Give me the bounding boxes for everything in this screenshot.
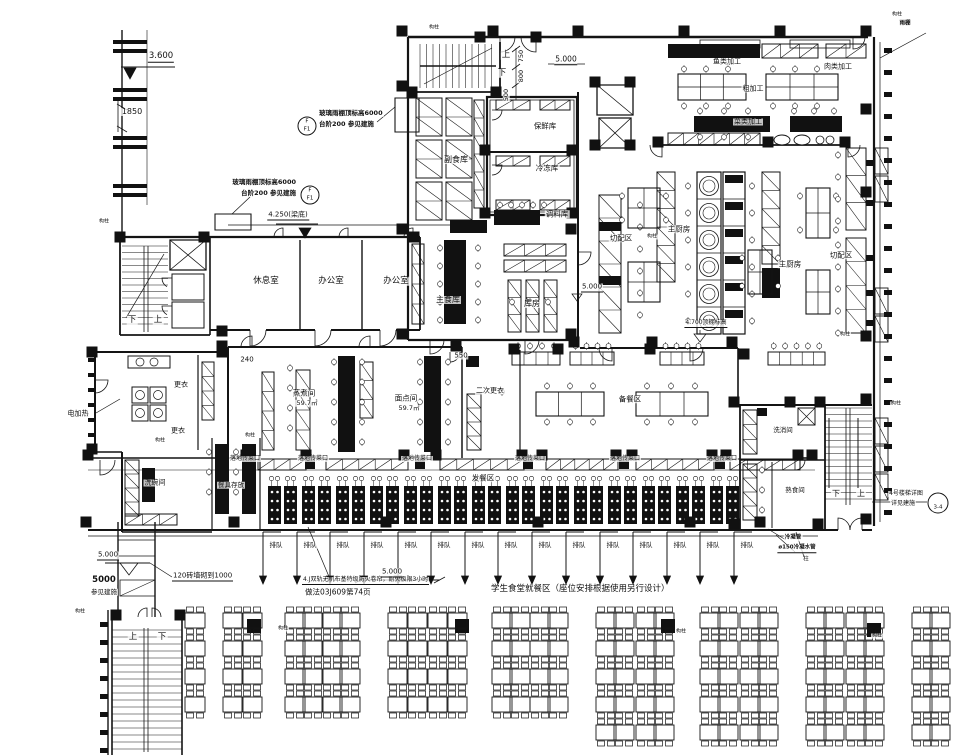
equipment-layer <box>81 26 951 754</box>
floor-plan-page: 3.6001850玻璃雨棚顶标高6000台阶200 参见建施玻璃雨棚顶标高600… <box>0 0 977 755</box>
floor-plan-drawing <box>0 0 977 755</box>
